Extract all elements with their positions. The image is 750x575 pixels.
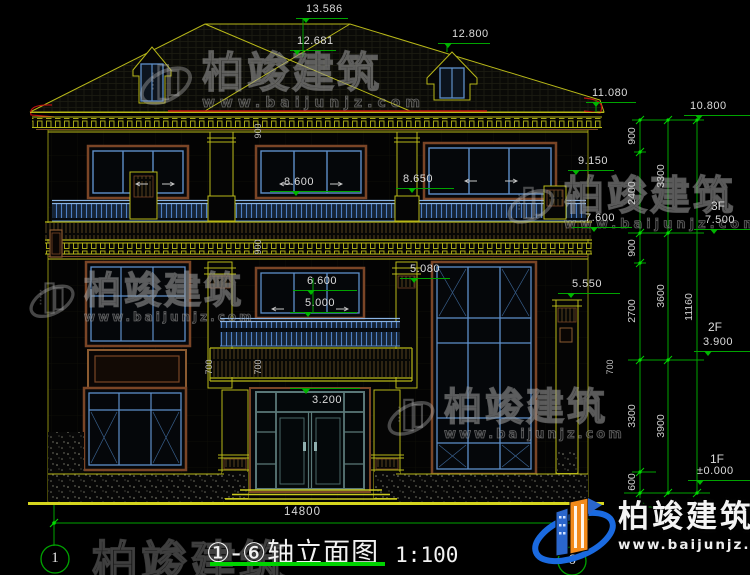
level-value: ±0.000	[697, 465, 734, 477]
dim-label: 3300	[626, 399, 638, 433]
level-value: 6.600	[307, 275, 337, 287]
floor-label-3f: 3F	[711, 199, 725, 213]
floor-label-2f: 2F	[708, 320, 722, 334]
level-value: 11.080	[592, 87, 628, 99]
level-marker: 12.681	[290, 35, 336, 59]
level-value: 5.550	[572, 278, 602, 290]
level-marker: 5.550	[558, 278, 620, 302]
dim-label: 3600	[655, 279, 667, 313]
brand-logo-icon	[528, 492, 624, 572]
level-value: 8.600	[284, 176, 314, 188]
level-marker: 8.600	[270, 176, 360, 200]
drawing-scale: 1:100	[395, 543, 458, 567]
level-marker: 7.500	[694, 214, 750, 238]
roof-cornice	[30, 113, 604, 133]
title-underline	[210, 562, 385, 566]
dim-label: 900	[253, 116, 263, 146]
overall-width-dim: 14800	[284, 506, 321, 518]
level-marker: 10.800	[684, 100, 750, 124]
level-marker: 12.800	[438, 28, 490, 52]
level-marker: 9.150	[568, 155, 614, 179]
balcony-slab-band	[45, 222, 592, 259]
dim-label: 2400	[626, 176, 638, 210]
level-value: 8.650	[403, 173, 433, 185]
level-marker: 13.586	[296, 3, 348, 27]
level-marker: 3.900	[694, 336, 750, 360]
level-value: 5.000	[305, 297, 335, 309]
level-marker: ±0.000	[688, 465, 750, 489]
level-marker: 11.080	[586, 87, 636, 111]
dim-label: 700	[605, 352, 615, 382]
dim-label: 3900	[655, 409, 667, 443]
level-marker: 5.000	[290, 297, 357, 321]
level-value: 3.200	[312, 394, 342, 406]
level-value: 7.600	[585, 212, 615, 224]
brand-site: www.baijunjz.com	[618, 537, 750, 553]
level-marker: 5.080	[400, 263, 450, 287]
dim-label: 900	[626, 231, 638, 265]
center-balcony	[210, 319, 412, 382]
level-value: 5.080	[410, 263, 440, 275]
dim-label: 900	[626, 119, 638, 153]
dim-label: 700	[204, 352, 214, 382]
level-marker: 7.600	[572, 212, 632, 236]
dim-label: 2700	[626, 294, 638, 328]
level-marker: 8.650	[396, 173, 454, 197]
floor-label-1f: 1F	[710, 452, 724, 466]
level-value: 3.900	[703, 336, 733, 348]
brand-logo-block: 柏竣建筑 www.baijunjz.com	[528, 492, 750, 572]
dim-label: 900	[253, 232, 263, 262]
cad-elevation-canvas: 柏竣建筑 www.baijunjz.com 柏竣建筑 www.baijunjz.…	[0, 0, 750, 575]
level-value: 7.500	[705, 214, 735, 226]
level-value: 9.150	[578, 155, 608, 167]
level-value: 12.800	[452, 28, 489, 40]
level-value: 12.681	[297, 35, 334, 47]
dim-label: 3300	[655, 159, 667, 193]
level-marker: 3.200	[290, 386, 360, 410]
axis-bubble-1: 1	[46, 550, 64, 567]
brand-name: 柏竣建筑	[618, 502, 750, 533]
dim-label: 700	[253, 352, 263, 382]
dim-label: 11160	[683, 290, 695, 324]
level-value: 13.586	[306, 3, 343, 15]
level-marker: 6.600	[293, 275, 357, 299]
level-value: 10.800	[690, 100, 727, 112]
